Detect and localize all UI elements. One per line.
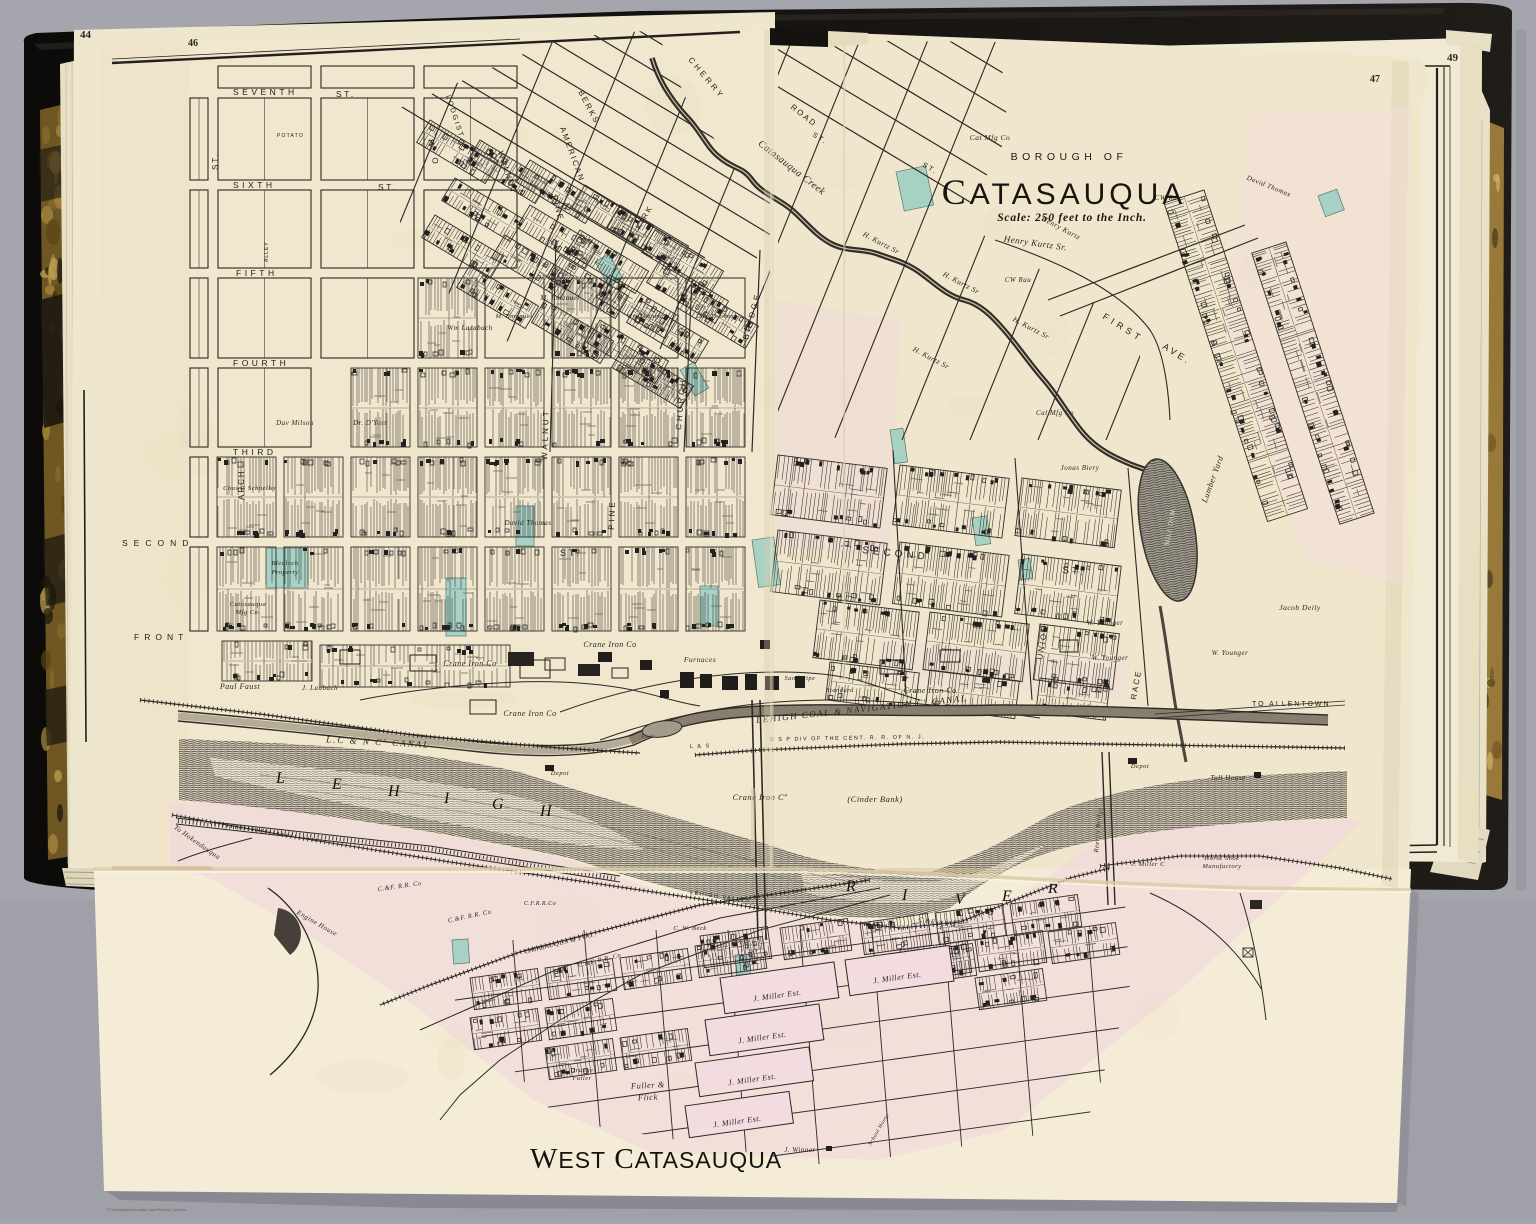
svg-text:W. Younger: W. Younger [1092, 654, 1129, 662]
svg-text:C. W. Beck: C. W. Beck [673, 925, 706, 932]
svg-text:47: 47 [1370, 74, 1380, 85]
svg-text:G: G [492, 796, 504, 813]
svg-text:J. Winner: J. Winner [784, 1146, 815, 1154]
svg-text:46: 46 [188, 38, 198, 49]
svg-text:Orange: Orange [571, 1067, 594, 1074]
svg-text:Crane Iron Cº: Crane Iron Cº [733, 792, 788, 802]
svg-text:ST.: ST. [211, 152, 220, 170]
svg-text:Fuller &: Fuller & [630, 1079, 665, 1091]
svg-text:44: 44 [80, 29, 92, 41]
svg-text:SIXTH: SIXTH [233, 180, 276, 190]
svg-text:Chas G Schneller: Chas G Schneller [223, 485, 277, 492]
svg-text:ST.: ST. [336, 89, 356, 99]
svg-text:Depot: Depot [550, 770, 569, 777]
svg-text:Cat Mfg Co: Cat Mfg Co [970, 133, 1010, 142]
svg-text:Jacob Deily: Jacob Deily [1279, 603, 1321, 612]
svg-text:© Cartography Associates, Davi: © Cartography Associates, David Rumsey C… [107, 1208, 186, 1212]
svg-text:M. Emanuel: M. Emanuel [539, 294, 579, 302]
svg-text:Blealoch: Blealoch [271, 560, 298, 567]
svg-text:Crane Iron Co: Crane Iron Co [583, 640, 636, 649]
svg-text:Dr. D'Yost: Dr. D'Yost [352, 419, 387, 427]
svg-text:CATASAUQUA: CATASAUQUA [942, 172, 1187, 212]
svg-text:Cal Mfg Co: Cal Mfg Co [1036, 409, 1074, 417]
svg-text:Crane Iron Co: Crane Iron Co [503, 709, 556, 718]
svg-text:J. Miller C: J. Miller C [1131, 861, 1165, 868]
svg-text:PINE: PINE [607, 499, 617, 530]
svg-text:J. Laubach: J. Laubach [302, 684, 338, 692]
svg-text:Mfg Co.: Mfg Co. [235, 609, 261, 616]
svg-text:SECOND: SECOND [122, 538, 194, 548]
svg-text:ST.: ST. [378, 182, 398, 192]
svg-text:SEVENTH: SEVENTH [233, 87, 298, 97]
svg-text:David Thomas: David Thomas [503, 519, 551, 527]
svg-text:FOURTH: FOURTH [233, 358, 289, 368]
svg-text:FIFTH: FIFTH [236, 268, 278, 278]
svg-text:Depot: Depot [1130, 763, 1149, 770]
svg-text:Crane Iron Co: Crane Iron Co [903, 686, 956, 695]
svg-text:I: I [443, 790, 450, 807]
svg-text:Property: Property [271, 569, 299, 576]
svg-text:Scale: 250 feet to the Inch.: Scale: 250 feet to the Inch. [997, 212, 1147, 224]
svg-text:CW Rau: CW Rau [1005, 276, 1032, 284]
svg-text:(Cinder Bank): (Cinder Bank) [847, 794, 902, 804]
svg-text:ST.: ST. [560, 548, 582, 558]
svg-text:Dav Milson: Dav Milson [275, 419, 314, 427]
svg-text:WEST CATASAUQUA: WEST CATASAUQUA [530, 1143, 782, 1175]
svg-text:H: H [426, 139, 436, 148]
svg-text:Paul Faust: Paul Faust [219, 682, 261, 691]
svg-text:THIRD: THIRD [233, 447, 276, 457]
svg-text:C.F.R.R.Co: C.F.R.R.Co [524, 901, 556, 907]
svg-text:Sand Pipe: Sand Pipe [784, 675, 815, 682]
svg-text:H: H [387, 783, 401, 800]
svg-text:Toll House: Toll House [1210, 774, 1245, 782]
svg-text:Manufactory: Manufactory [1201, 863, 1241, 870]
svg-text:Standard: Standard [826, 687, 854, 694]
svg-text:H: H [539, 803, 553, 820]
svg-text:Catasauqua: Catasauqua [230, 601, 266, 608]
svg-text:I: I [901, 887, 908, 904]
svg-text:Lock: Lock [641, 734, 655, 740]
svg-text:L: L [275, 770, 285, 787]
svg-text:Wm Lazabach: Wm Lazabach [447, 324, 492, 332]
svg-text:BOROUGH OF: BOROUGH OF [1011, 151, 1128, 163]
svg-text:POTATO: POTATO [277, 133, 304, 139]
svg-text:FRONT: FRONT [134, 632, 188, 642]
svg-text:ALLEY: ALLEY [264, 241, 270, 262]
svg-text:E: E [331, 776, 342, 793]
svg-text:WALNUT: WALNUT [540, 408, 551, 460]
svg-text:Furnaces: Furnaces [683, 655, 716, 664]
svg-text:Fuller: Fuller [571, 1075, 591, 1082]
svg-text:L & S: L & S [690, 743, 711, 750]
svg-text:Jonas Biery: Jonas Biery [1061, 464, 1100, 472]
svg-text:49: 49 [1447, 52, 1459, 64]
svg-text:W. Younger: W. Younger [1087, 619, 1124, 627]
svg-text:O: O [430, 157, 440, 168]
svg-text:Flick: Flick [637, 1091, 658, 1102]
svg-text:Crane Iron Co: Crane Iron Co [443, 659, 496, 668]
svg-text:Horse Shoe: Horse Shoe [1203, 855, 1239, 862]
svg-text:W. Younger: W. Younger [1212, 649, 1249, 657]
